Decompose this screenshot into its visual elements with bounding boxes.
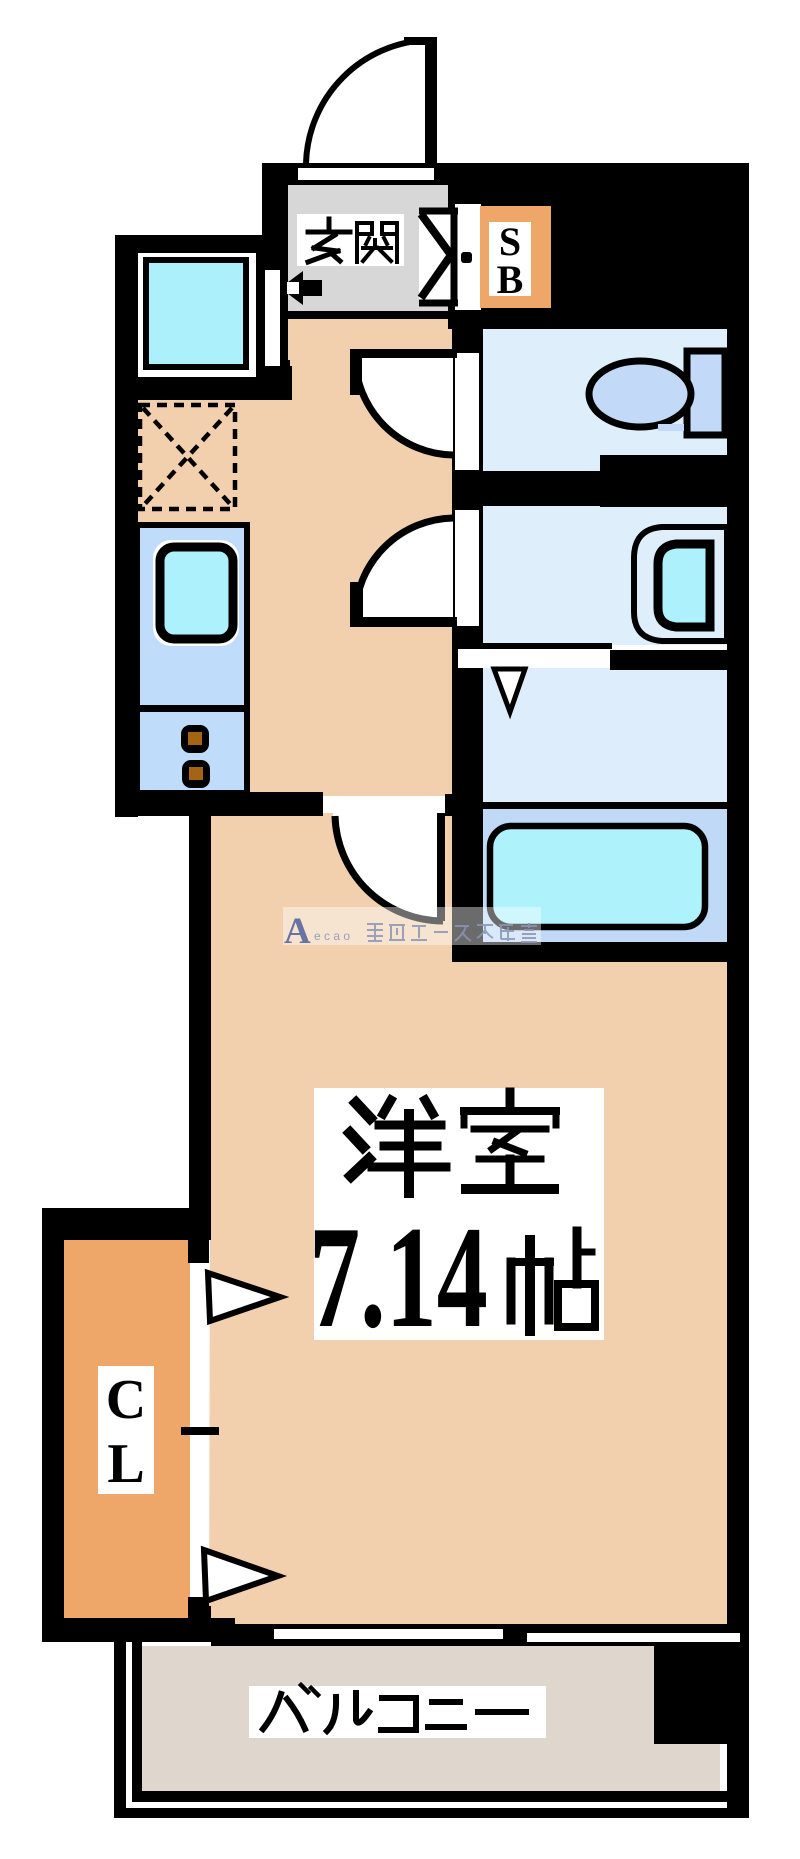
svg-text:B: B — [497, 257, 524, 302]
svg-text:A: A — [284, 911, 311, 952]
svg-text:L: L — [107, 1433, 144, 1495]
svg-text:C: C — [106, 1369, 146, 1431]
svg-text:7.14: 7.14 — [309, 1197, 488, 1358]
svg-text:e c a o: e c a o — [314, 929, 350, 943]
